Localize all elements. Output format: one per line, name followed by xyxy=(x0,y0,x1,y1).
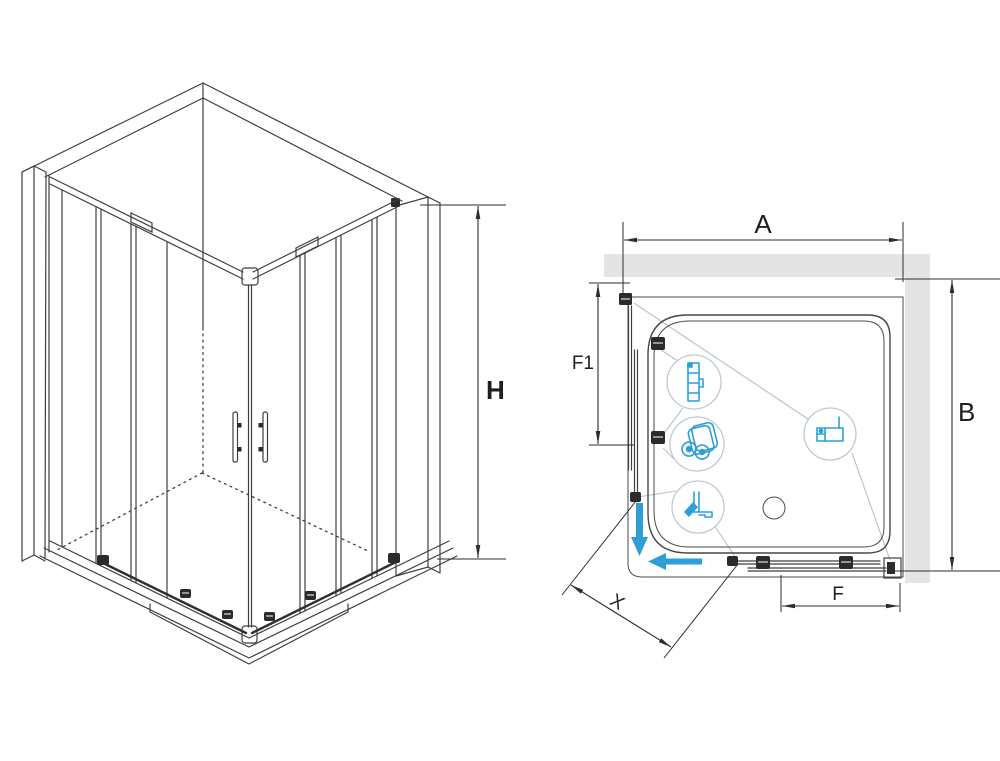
wall-bracket-detail xyxy=(804,408,856,460)
dimension-label-h: H xyxy=(486,375,505,405)
door-handle-right xyxy=(259,412,268,462)
right-wall-panel xyxy=(391,197,440,576)
dimension-f1: F1 xyxy=(572,283,634,445)
wall-profile-detail xyxy=(667,355,721,409)
hidden-floor-edge-left xyxy=(57,473,202,550)
drain-icon xyxy=(763,497,785,519)
door-edge-cap-left xyxy=(630,492,641,502)
wall-profile-insert xyxy=(887,562,895,574)
door-meeting-edge xyxy=(242,285,257,643)
dimension-f: F xyxy=(781,575,900,612)
top-wall xyxy=(604,254,930,277)
slide-left-arrow-icon xyxy=(648,553,702,570)
bottom-track-left xyxy=(103,563,246,633)
corner-post-bottom xyxy=(242,626,257,643)
right-wall xyxy=(905,254,930,583)
right-glass-panels xyxy=(300,217,377,613)
dimension-label-x: X xyxy=(606,590,628,615)
rail-joint-right xyxy=(296,237,318,257)
enclosure-outline xyxy=(628,297,903,577)
top-plan-view: A B F1 F X xyxy=(562,209,1000,658)
left-glass-panels xyxy=(62,190,167,598)
corner-seal-detail xyxy=(672,481,724,533)
hidden-floor-edge-right xyxy=(202,473,368,551)
left-wall-panel xyxy=(22,166,49,561)
door-edge-cap-bottom xyxy=(727,556,738,566)
roller-detail xyxy=(670,417,724,471)
top-frame xyxy=(22,83,430,285)
bottom-side-panels xyxy=(727,556,901,578)
door-handle-left xyxy=(233,412,242,462)
dimension-label-f: F xyxy=(832,584,844,605)
technical-drawing-canvas: H xyxy=(0,0,1000,761)
dimension-label-f1: F1 xyxy=(572,353,594,374)
dimension-label-b: B xyxy=(958,397,975,427)
dimension-a: A xyxy=(623,209,903,298)
dimension-h: H xyxy=(420,205,506,559)
drawing-svg: H xyxy=(0,0,1000,761)
bottom-track-right xyxy=(252,562,396,633)
slide-down-arrow-icon xyxy=(631,503,648,556)
dimension-label-a: A xyxy=(754,209,772,239)
isometric-view: H xyxy=(22,83,506,664)
